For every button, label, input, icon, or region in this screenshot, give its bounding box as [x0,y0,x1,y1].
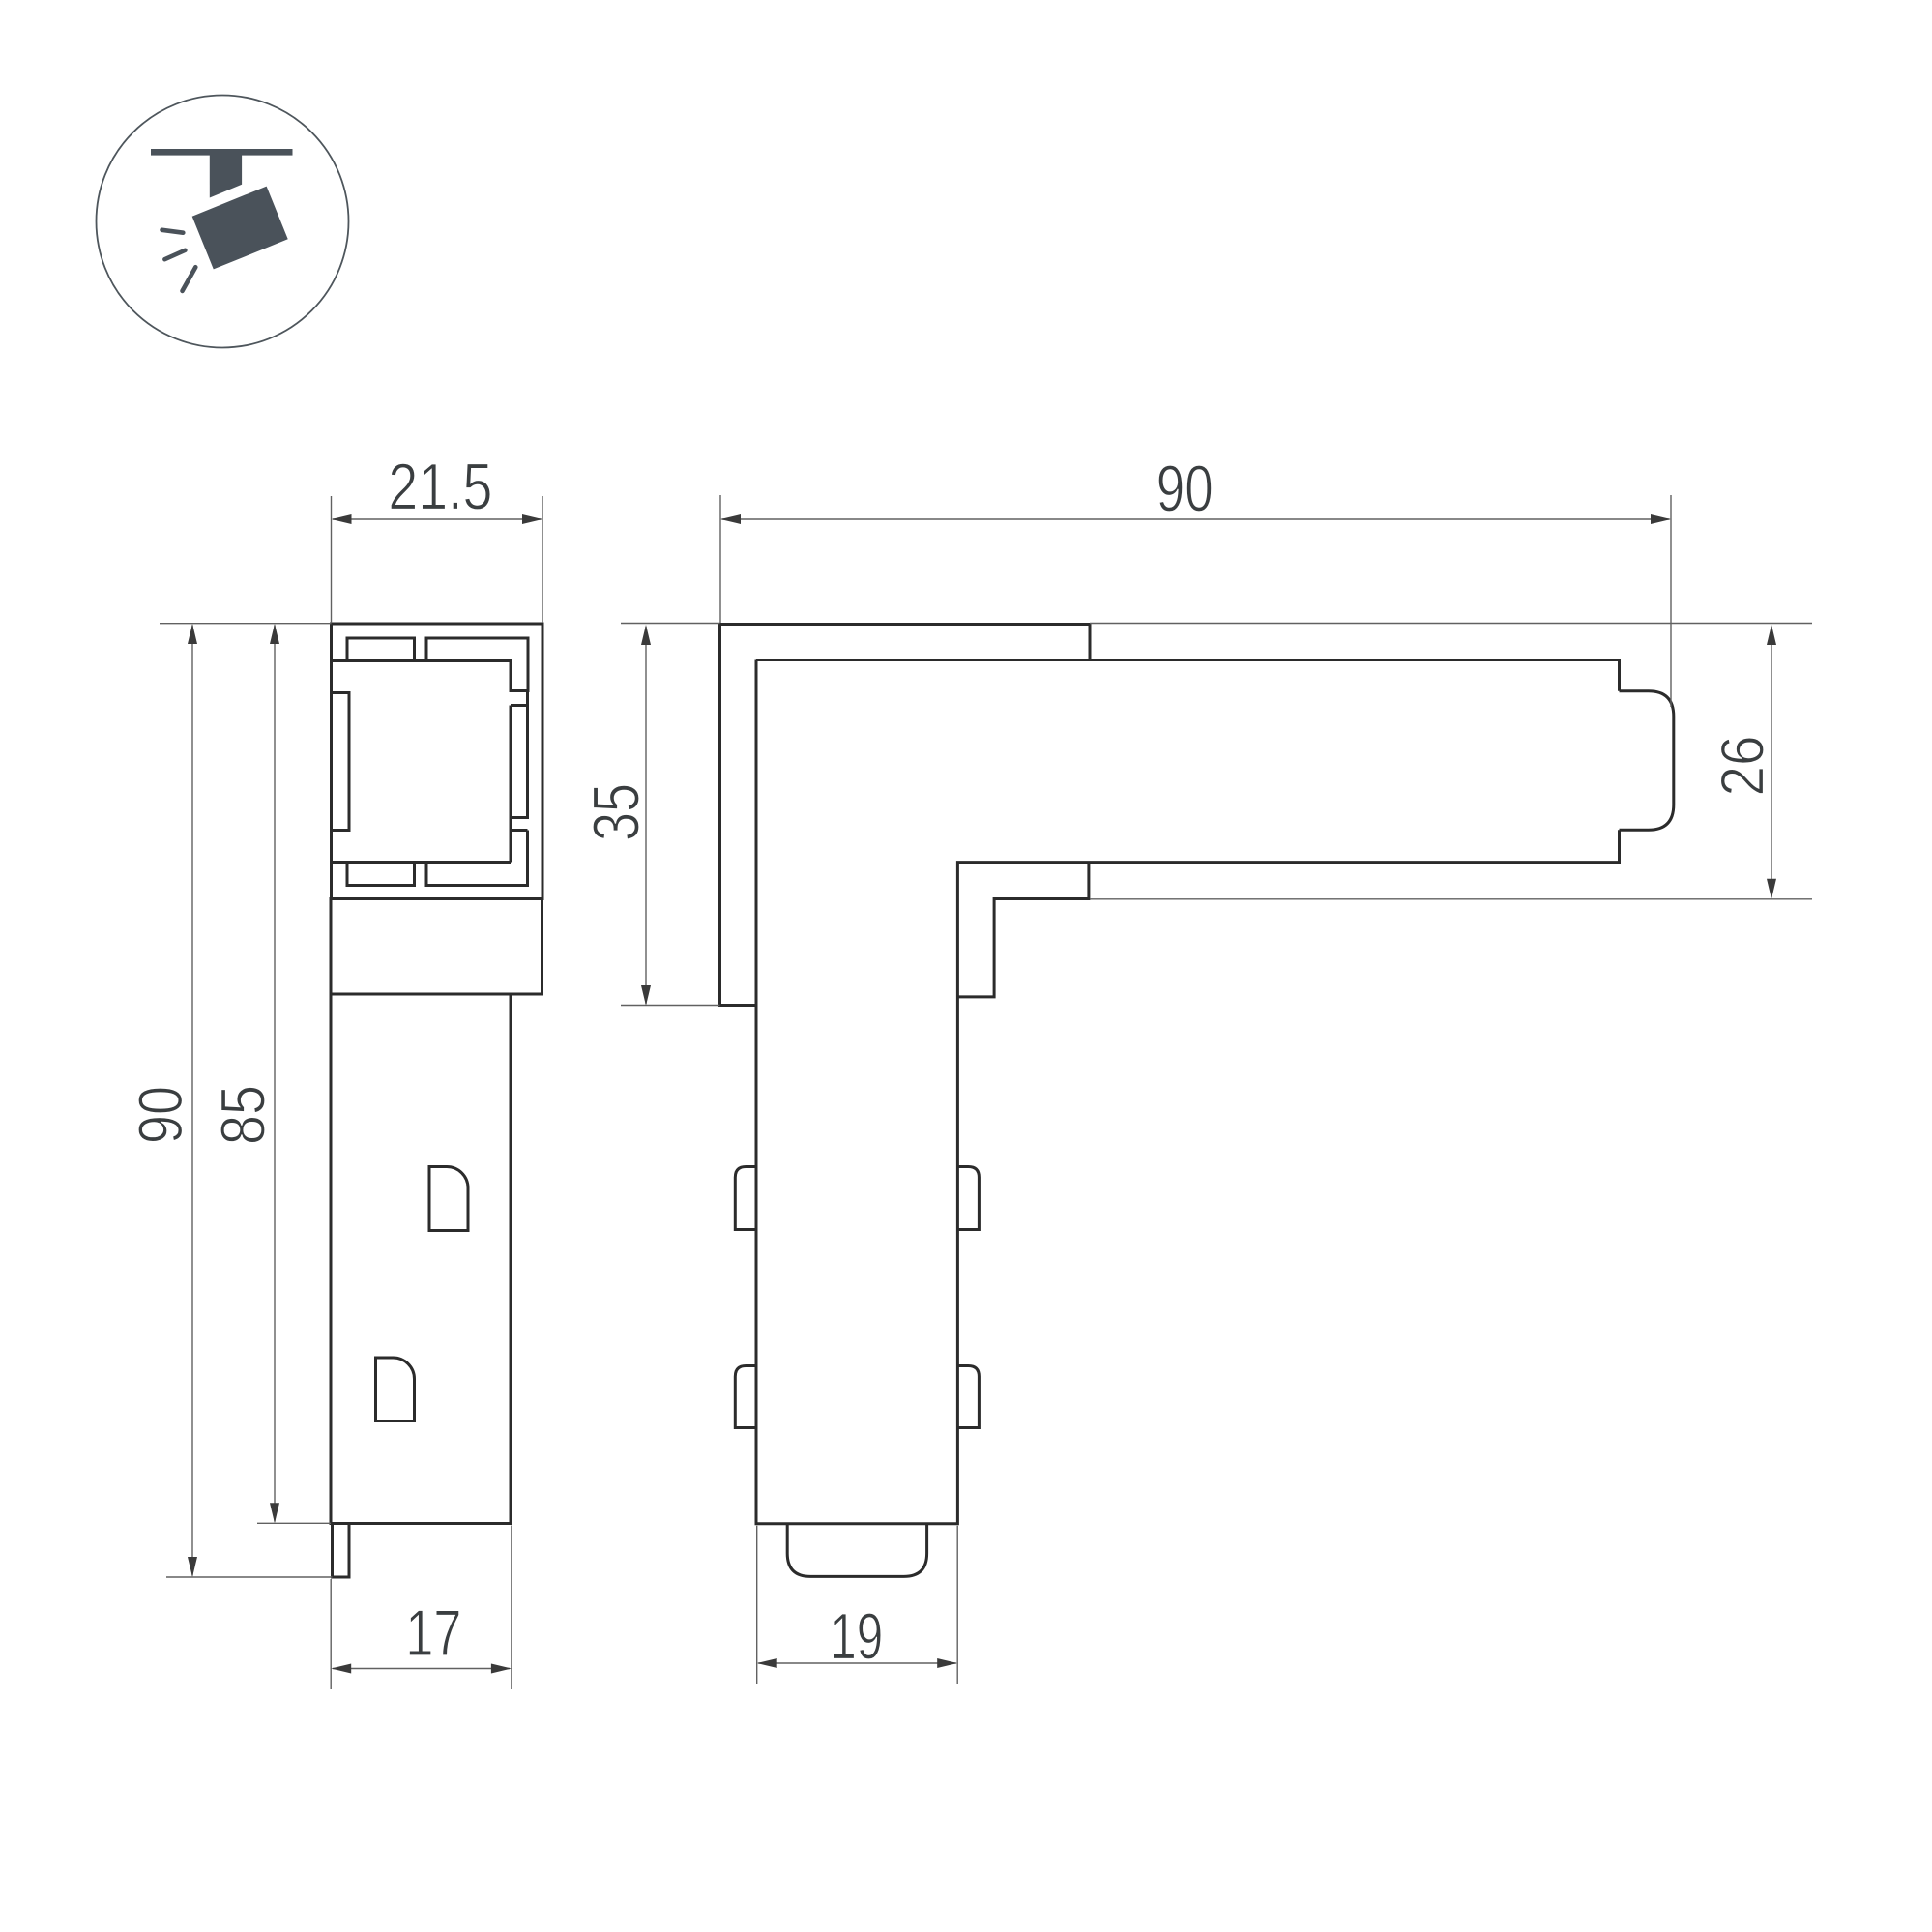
svg-text:21.5: 21.5 [388,451,492,524]
svg-text:90: 90 [126,1086,195,1144]
svg-text:19: 19 [830,1599,883,1673]
svg-text:85: 85 [208,1085,278,1145]
svg-text:35: 35 [580,783,654,841]
svg-text:90: 90 [1156,453,1214,526]
svg-text:17: 17 [405,1596,461,1670]
svg-text:26: 26 [1709,736,1776,797]
